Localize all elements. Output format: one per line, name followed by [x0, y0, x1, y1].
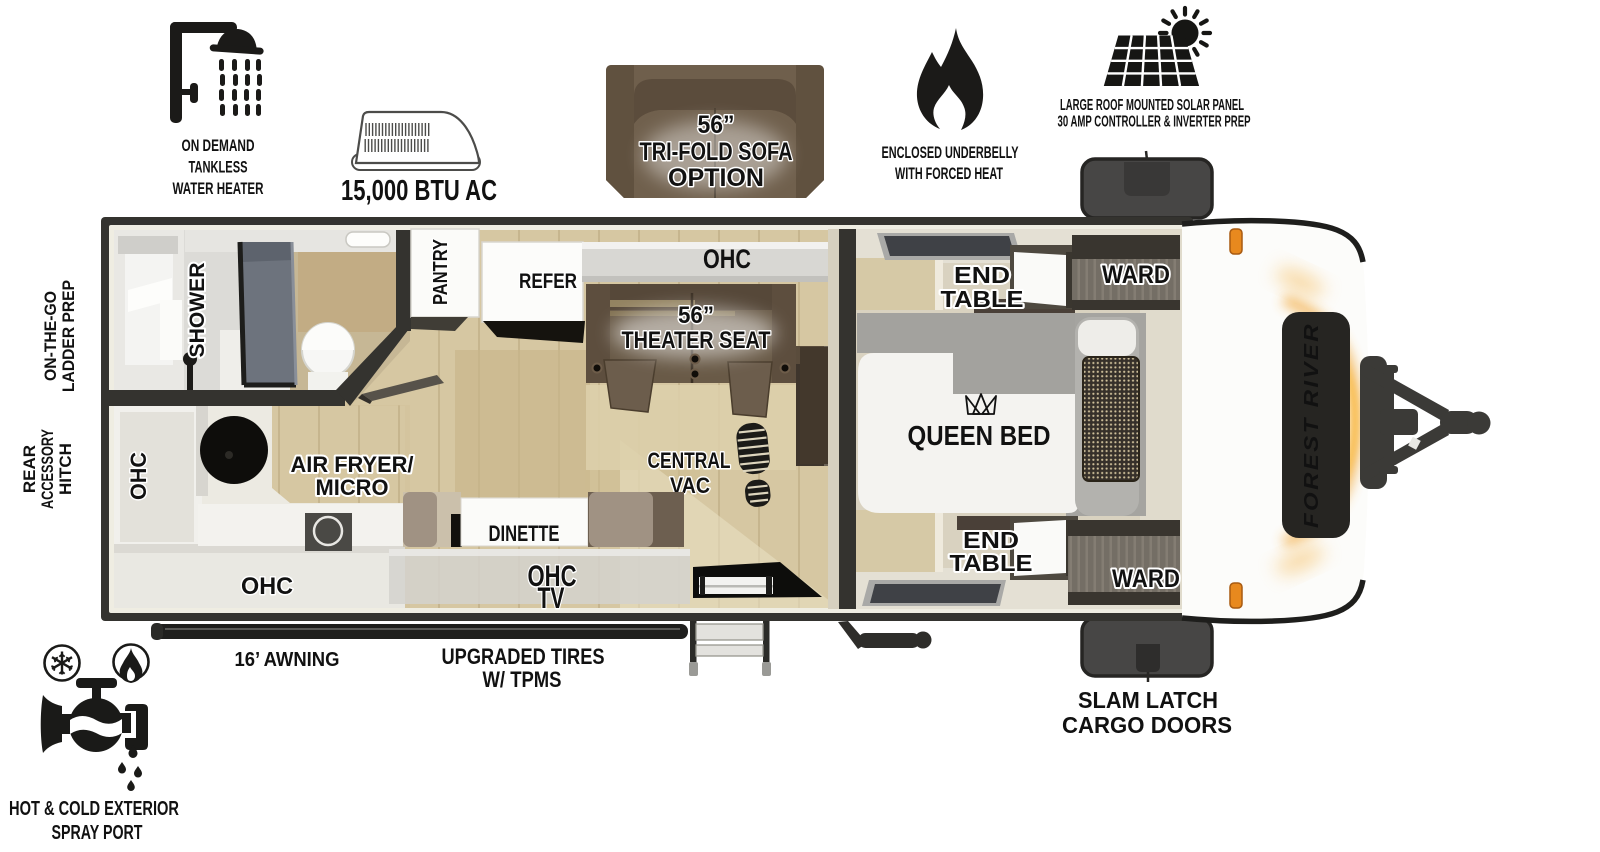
svg-text:TABLE: TABLE [950, 550, 1033, 576]
svg-text:ENCLOSED UNDERBELLY: ENCLOSED UNDERBELLY [882, 144, 1019, 162]
svg-text:ON-THE-GO: ON-THE-GO [41, 291, 60, 381]
svg-text:ACCESSORY: ACCESSORY [38, 429, 57, 509]
svg-text:OHC: OHC [241, 573, 293, 600]
svg-text:MICRO: MICRO [316, 475, 389, 500]
svg-text:OPTION: OPTION [668, 164, 764, 192]
svg-text:W/ TPMS: W/ TPMS [483, 667, 562, 692]
svg-text:WATER HEATER: WATER HEATER [173, 180, 264, 198]
svg-text:30 AMP CONTROLLER & INVERTER P: 30 AMP CONTROLLER & INVERTER PREP [1058, 114, 1251, 131]
svg-text:56”: 56” [698, 111, 735, 139]
svg-text:WITH FORCED HEAT: WITH FORCED HEAT [895, 165, 1003, 183]
svg-text:CENTRAL: CENTRAL [648, 448, 731, 473]
svg-text:SPRAY PORT: SPRAY PORT [52, 821, 143, 844]
svg-text:HITCH: HITCH [56, 443, 75, 495]
svg-text:TABLE: TABLE [941, 286, 1024, 312]
svg-text:HOT & COLD EXTERIOR: HOT & COLD EXTERIOR [9, 797, 179, 820]
svg-text:OHC: OHC [126, 452, 151, 500]
svg-text:SLAM LATCH: SLAM LATCH [1078, 687, 1218, 713]
svg-text:AIR FRYER/: AIR FRYER/ [291, 452, 414, 477]
svg-text:56”: 56” [678, 302, 714, 329]
svg-text:REAR: REAR [20, 445, 39, 493]
svg-text:PANTRY: PANTRY [430, 238, 452, 305]
svg-text:OHC: OHC [703, 244, 751, 274]
svg-text:LARGE ROOF MOUNTED SOLAR PANEL: LARGE ROOF MOUNTED SOLAR PANEL [1060, 97, 1244, 114]
svg-text:WARD: WARD [1102, 261, 1170, 289]
svg-text:REFER: REFER [519, 270, 577, 293]
svg-text:LADDER PREP: LADDER PREP [59, 280, 78, 392]
svg-text:WARD: WARD [1112, 565, 1180, 593]
svg-text:FOREST RIVER: FOREST RIVER [1301, 322, 1323, 528]
svg-text:15,000 BTU AC: 15,000 BTU AC [341, 175, 497, 207]
svg-text:TANKLESS: TANKLESS [189, 159, 248, 177]
svg-text:END: END [954, 262, 1010, 288]
svg-text:UPGRADED TIRES: UPGRADED TIRES [442, 644, 605, 669]
svg-text:16’ AWNING: 16’ AWNING [235, 649, 340, 671]
svg-text:DINETTE: DINETTE [489, 521, 560, 546]
svg-text:CARGO DOORS: CARGO DOORS [1062, 712, 1232, 738]
svg-text:TV: TV [538, 582, 565, 615]
svg-text:QUEEN BED: QUEEN BED [908, 420, 1051, 451]
svg-text:SHOWER: SHOWER [186, 263, 209, 358]
svg-text:ON DEMAND: ON DEMAND [182, 137, 255, 155]
svg-text:TRI-FOLD SOFA: TRI-FOLD SOFA [640, 138, 793, 166]
svg-text:THEATER SEAT: THEATER SEAT [622, 327, 771, 354]
